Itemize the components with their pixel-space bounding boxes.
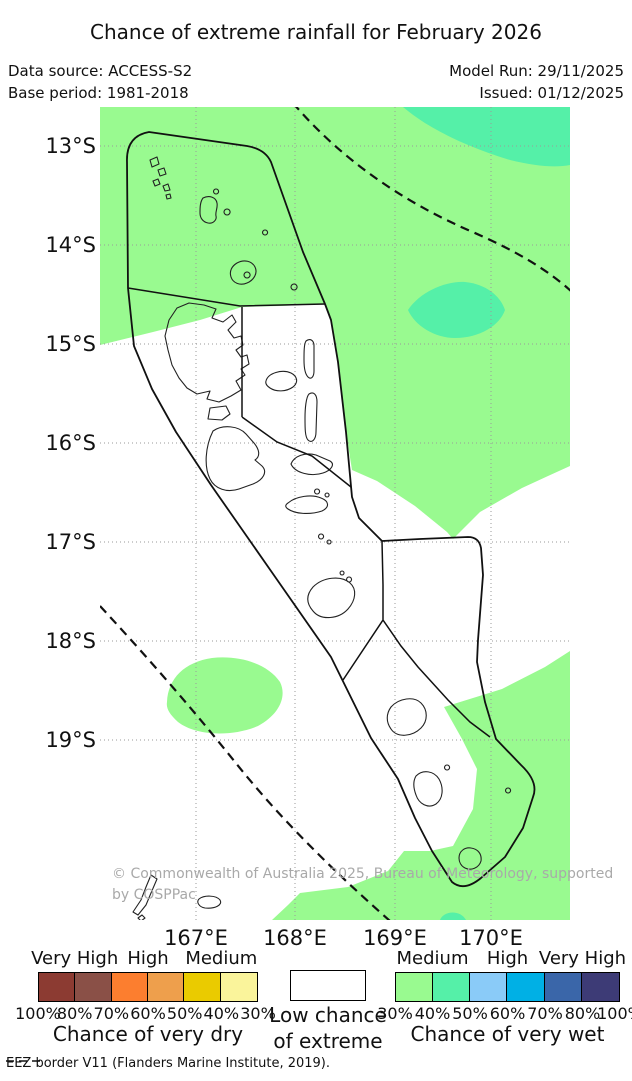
low-chance-swatch bbox=[290, 970, 366, 1001]
model-run-label: Model Run: 29/11/2025 bbox=[449, 62, 624, 80]
eez-note-label: EEZ border V11 (Flanders Marine Institut… bbox=[6, 1056, 330, 1071]
eez-dash-sample bbox=[6, 1056, 44, 1066]
wet-colorbar bbox=[395, 972, 620, 1002]
dry-pct-40: 40% bbox=[204, 1004, 240, 1023]
y-axis-label-15s: 15°S bbox=[34, 332, 96, 356]
wet-swatch-50 bbox=[470, 973, 507, 1001]
dry-pct-50: 50% bbox=[167, 1004, 203, 1023]
copyright-line1: © Commonwealth of Australia 2025, Bureau… bbox=[112, 864, 613, 885]
wet-level-high: High bbox=[487, 948, 528, 969]
wet-pct-50: 50% bbox=[452, 1004, 488, 1023]
base-period-label: Base period: 1981-2018 bbox=[8, 84, 189, 102]
wet-swatch-70 bbox=[545, 973, 582, 1001]
wet-pct-70: 70% bbox=[527, 1004, 563, 1023]
page-title: Chance of extreme rainfall for February … bbox=[0, 20, 632, 44]
wet-swatch-30 bbox=[396, 973, 433, 1001]
wet-swatch-60 bbox=[507, 973, 544, 1001]
copyright-watermark: © Commonwealth of Australia 2025, Bureau… bbox=[112, 864, 613, 906]
dry-level-very-high: Very High bbox=[31, 948, 118, 969]
x-axis-label-168e: 168°E bbox=[260, 926, 330, 950]
data-source-label: Data source: ACCESS-S2 bbox=[8, 62, 192, 80]
low-chance-line2: of extreme bbox=[247, 1028, 409, 1054]
wet-swatch-40 bbox=[433, 973, 470, 1001]
y-axis-label-16s: 16°S bbox=[34, 431, 96, 455]
dry-swatch-60 bbox=[148, 973, 184, 1001]
dry-level-medium: Medium bbox=[185, 948, 257, 969]
dry-swatch-40 bbox=[221, 973, 257, 1001]
issued-label: Issued: 01/12/2025 bbox=[479, 84, 624, 102]
wet-pct-30: 30% bbox=[377, 1004, 413, 1023]
footer-eez-note: EEZ border V11 (Flanders Marine Institut… bbox=[6, 1056, 330, 1071]
wet-caption: Chance of very wet bbox=[411, 1022, 605, 1046]
dry-pct-100: 100% bbox=[15, 1004, 61, 1023]
wet-pct-40: 40% bbox=[415, 1004, 451, 1023]
dry-swatch-100 bbox=[39, 973, 75, 1001]
y-axis-label-19s: 19°S bbox=[34, 728, 96, 752]
copyright-line2: by COSPPac bbox=[112, 885, 613, 906]
y-axis-label-14s: 14°S bbox=[34, 233, 96, 257]
x-axis-label-170e: 170°E bbox=[456, 926, 526, 950]
y-axis-label-17s: 17°S bbox=[34, 530, 96, 554]
dry-level-high: High bbox=[127, 948, 168, 969]
dry-pct-80: 80% bbox=[57, 1004, 93, 1023]
wet-swatch-80 bbox=[582, 973, 619, 1001]
y-axis-label-18s: 18°S bbox=[34, 629, 96, 653]
wet-level-medium: Medium bbox=[397, 948, 469, 969]
dry-pct-60: 60% bbox=[130, 1004, 166, 1023]
x-axis-label-169e: 169°E bbox=[360, 926, 430, 950]
wet-pct-80: 80% bbox=[565, 1004, 601, 1023]
x-axis-label-167e: 167°E bbox=[161, 926, 231, 950]
wet-level-very-high: Very High bbox=[539, 948, 626, 969]
dry-swatch-50 bbox=[184, 973, 220, 1001]
wet-pct-100: 100% bbox=[597, 1004, 632, 1023]
dry-caption: Chance of very dry bbox=[53, 1022, 243, 1046]
wet-pct-60: 60% bbox=[490, 1004, 526, 1023]
dry-colorbar bbox=[38, 972, 258, 1002]
y-axis-label-13s: 13°S bbox=[34, 134, 96, 158]
dry-pct-70: 70% bbox=[94, 1004, 130, 1023]
dry-swatch-80 bbox=[75, 973, 111, 1001]
dry-swatch-70 bbox=[112, 973, 148, 1001]
